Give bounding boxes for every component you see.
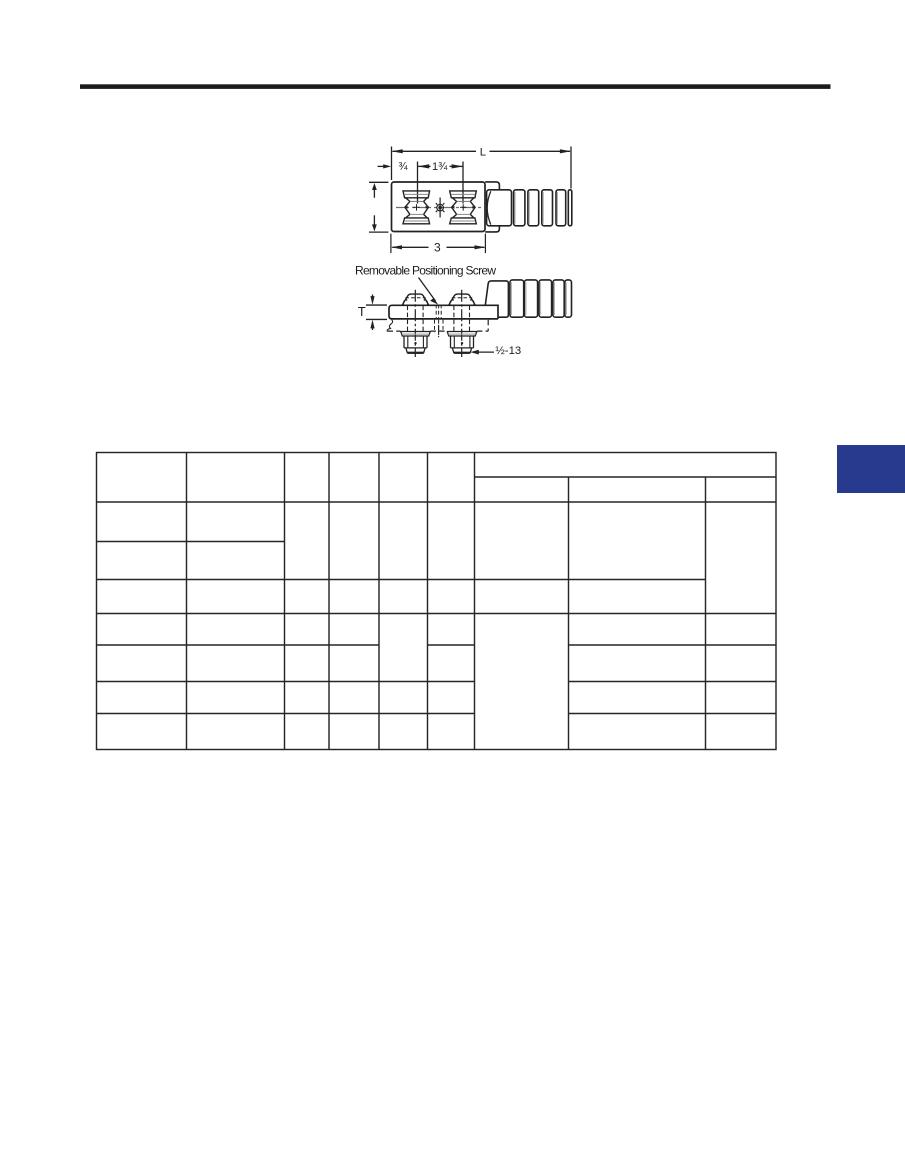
svg-text:3: 3 [434, 241, 441, 255]
svg-text:Removable Positioning Screw: Removable Positioning Screw [355, 264, 496, 278]
svg-text:T: T [358, 304, 366, 319]
svg-text:¾: ¾ [398, 161, 408, 173]
svg-text:L: L [480, 147, 486, 159]
svg-text:1¾: 1¾ [432, 161, 448, 173]
svg-text:½-13: ½-13 [495, 345, 521, 357]
